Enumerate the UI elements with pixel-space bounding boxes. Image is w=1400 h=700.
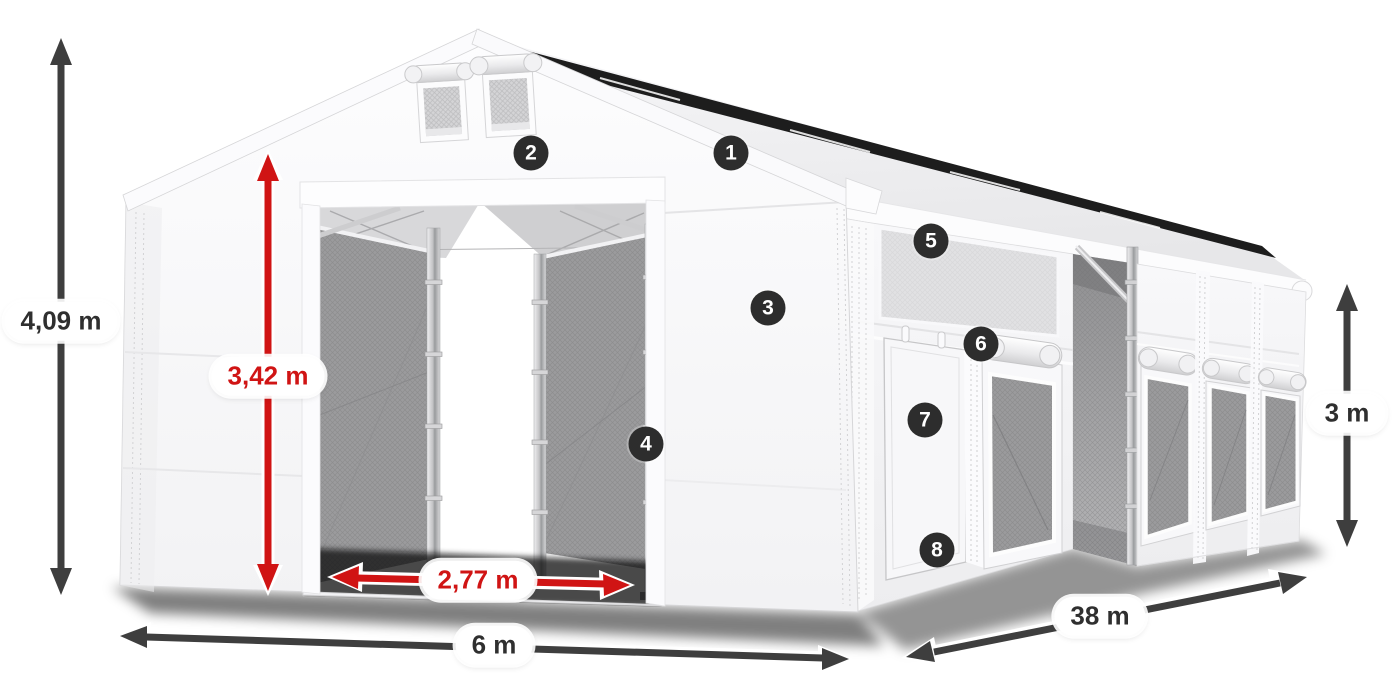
side-window [981,334,1064,569]
entrance-interior [300,195,666,610]
tent-illustration [0,0,1400,700]
part-marker-2[interactable]: 2 [514,136,549,171]
dimension-label-total-height: 4,09 m [5,302,118,341]
part-marker-3[interactable]: 3 [751,291,786,326]
part-marker-7[interactable]: 7 [908,403,943,438]
tent-dimension-diagram: 4,09 m 3,42 m 2,77 m 6 m 38 m 3 m 1 2 3 … [0,0,1400,700]
entrance-lintel [300,177,665,208]
side-wall-far-section [1137,264,1308,566]
part-marker-4[interactable]: 4 [629,427,664,462]
part-marker-1[interactable]: 1 [714,136,749,171]
corner-pole [1127,247,1138,565]
side-wall-door-bay [846,219,1073,611]
open-bay [1073,246,1140,566]
dimension-label-length: 38 m [1054,597,1145,636]
part-marker-8[interactable]: 8 [920,533,955,568]
dimension-label-entrance-height: 3,42 m [212,357,325,396]
dimension-label-front-width: 6 m [456,626,533,665]
dimension-label-side-height: 3 m [1309,394,1386,433]
inner-mesh-panel-right [538,234,652,570]
part-marker-6[interactable]: 6 [964,327,999,362]
part-marker-5[interactable]: 5 [914,224,949,259]
entrance-jamb-right [646,200,665,606]
entrance-jamb-left [302,204,320,594]
dimension-label-entrance-width: 2,77 m [422,561,535,600]
